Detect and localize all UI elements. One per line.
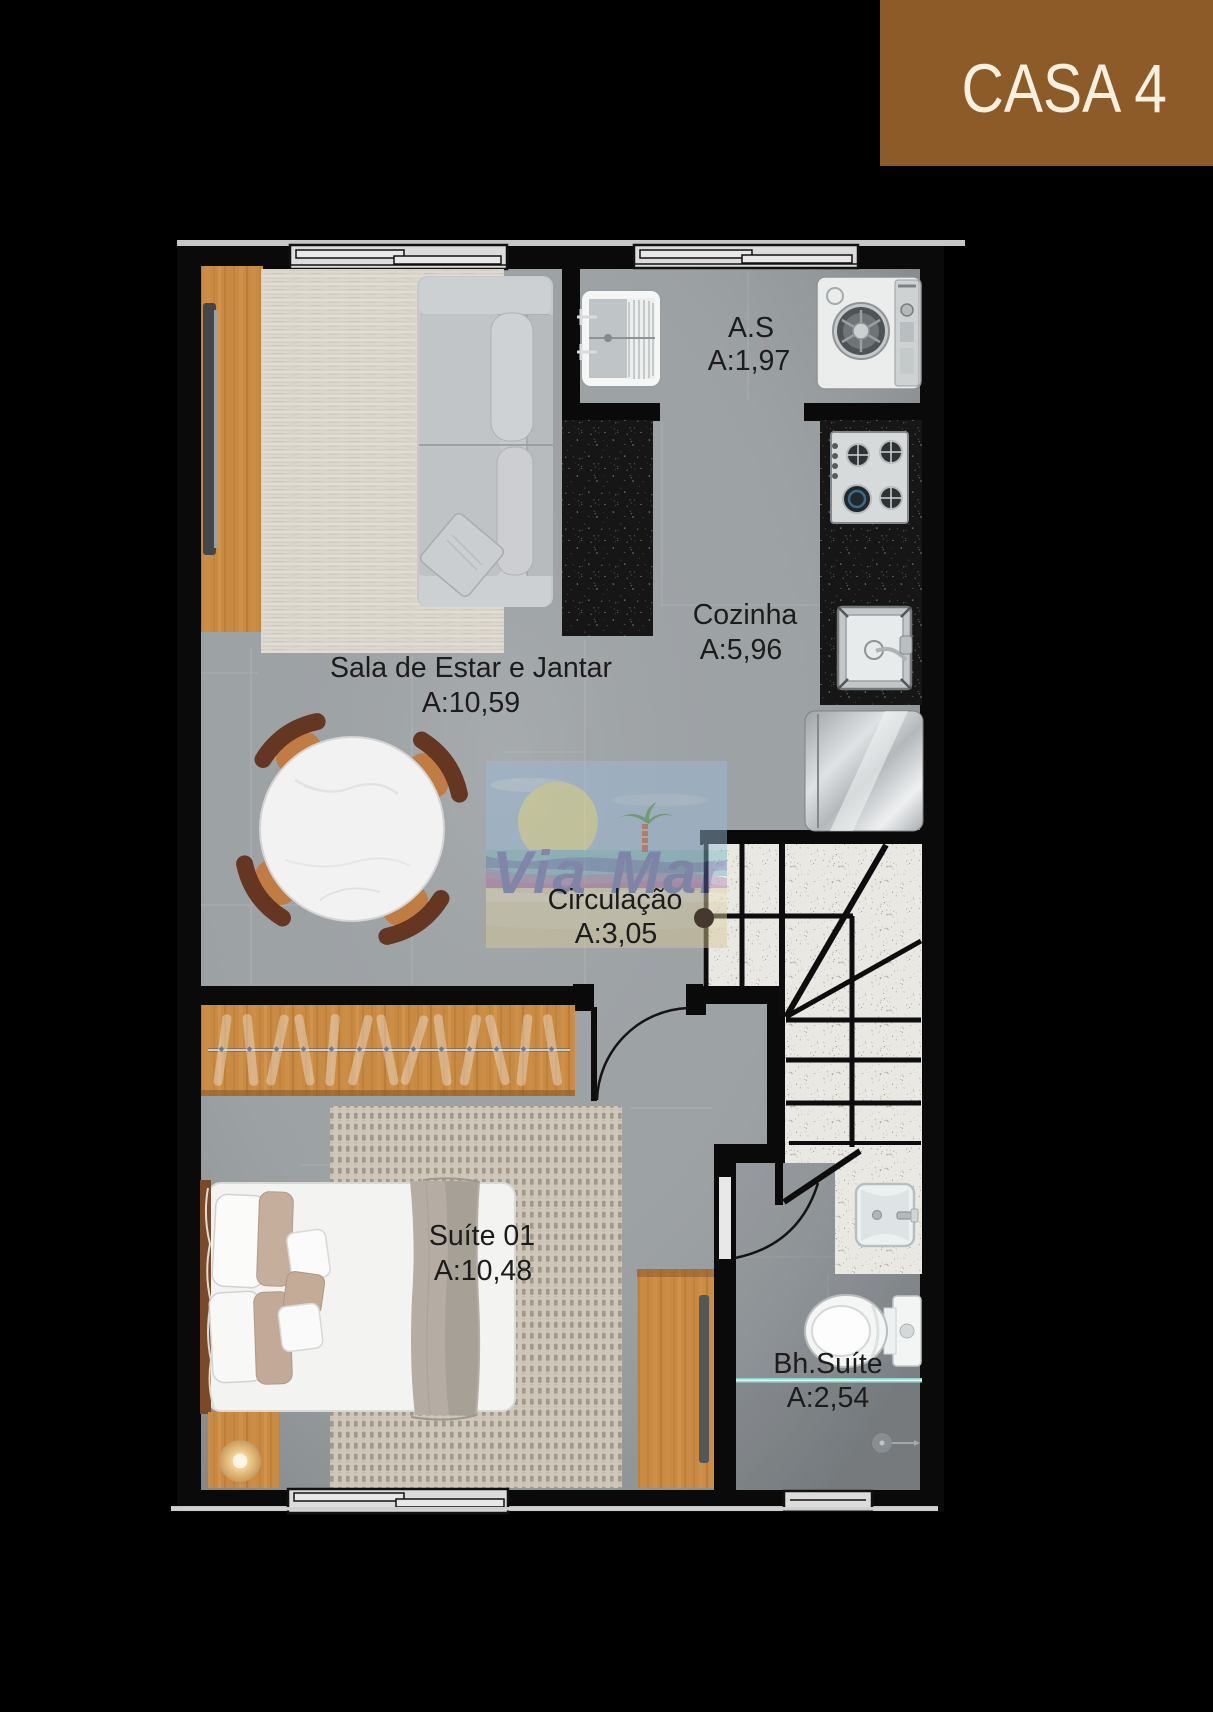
- svg-text:Suíte 01: Suíte 01: [429, 1220, 535, 1252]
- svg-text:A:3,05: A:3,05: [575, 918, 657, 950]
- svg-text:Bh.Suíte: Bh.Suíte: [773, 1348, 882, 1380]
- svg-text:A:1,97: A:1,97: [708, 345, 790, 377]
- svg-text:Cozinha: Cozinha: [693, 599, 798, 631]
- svg-text:Sala de Estar e Jantar: Sala de Estar e Jantar: [330, 652, 613, 684]
- svg-text:A.S: A.S: [728, 312, 774, 344]
- svg-text:Circulação: Circulação: [548, 884, 683, 916]
- svg-text:A:10,48: A:10,48: [434, 1255, 532, 1287]
- svg-text:A:2,54: A:2,54: [787, 1382, 870, 1414]
- svg-text:CASA 4: CASA 4: [962, 50, 1167, 128]
- svg-text:A:10,59: A:10,59: [422, 687, 520, 719]
- svg-text:A:5,96: A:5,96: [700, 634, 782, 666]
